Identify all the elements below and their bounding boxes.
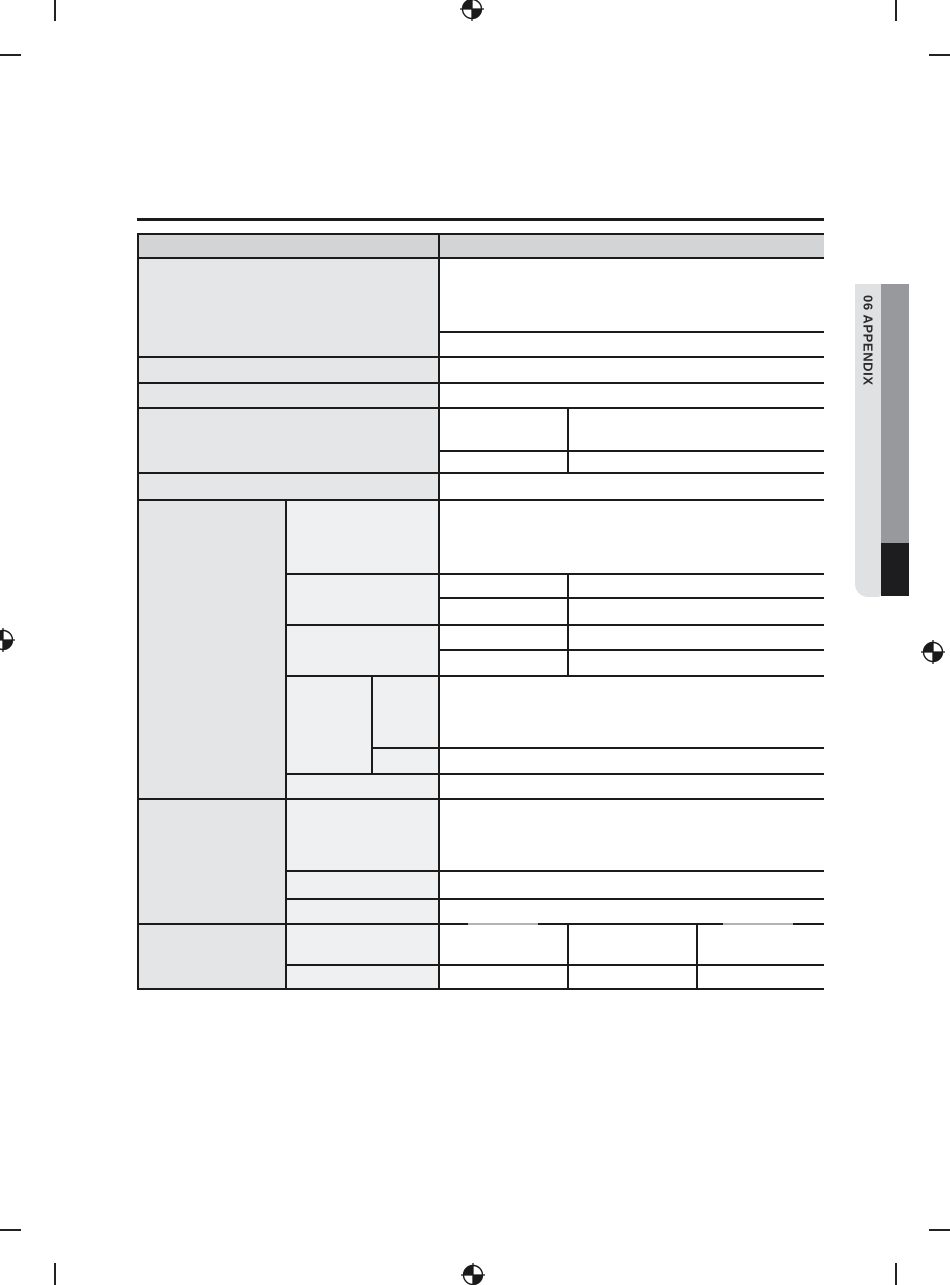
crop-mark-top-left-horizontal: [0, 54, 21, 56]
table-border-line: [137, 233, 824, 235]
table-border-line: [439, 649, 824, 651]
print-artifact-faded-line: [723, 923, 793, 925]
table-border-line: [439, 597, 824, 599]
table-border-line: [286, 675, 824, 677]
manual-page: 06 APPENDIX: [0, 0, 950, 1285]
header-cell-left: [140, 236, 435, 256]
table-border-line: [137, 257, 824, 259]
table-border-line: [137, 499, 824, 501]
table-border-line: [137, 407, 824, 409]
table-top-rule: [137, 218, 824, 221]
table-border-line: [286, 898, 824, 900]
table-value-divider: [567, 573, 569, 677]
table-border-line: [137, 472, 824, 474]
chapter-tab: 06 APPENDIX: [855, 284, 881, 597]
table-bottom-rule: [137, 988, 824, 990]
crop-mark-top-right-vertical: [895, 0, 897, 21]
table-column-divider-main: [438, 233, 440, 990]
registration-mark-top-center-icon: [460, 0, 484, 21]
table-left-border: [137, 233, 139, 990]
chapter-tab-gray-bar: [881, 284, 909, 543]
table-value-divider: [567, 923, 569, 990]
table-border-line: [286, 964, 824, 966]
crop-mark-top-right-horizontal: [929, 54, 950, 56]
crop-mark-bottom-right-horizontal: [929, 1229, 950, 1231]
table-border-line: [286, 773, 824, 775]
crop-mark-bottom-left-horizontal: [0, 1229, 21, 1231]
registration-mark-right-edge-icon: [921, 640, 945, 664]
table-border-line: [286, 624, 824, 626]
registration-mark-bottom-center-icon: [461, 1263, 485, 1285]
table-value-divider: [567, 407, 569, 474]
table-value-divider: [696, 923, 698, 990]
print-artifact-faded-line: [468, 923, 538, 925]
table-column-divider-category: [285, 499, 287, 990]
table-border-line: [439, 450, 824, 452]
table-category-column: [137, 500, 286, 989]
table-border-line: [137, 798, 824, 800]
crop-mark-top-left-vertical: [54, 0, 56, 21]
table-upper-label-column: [137, 258, 439, 500]
table-border-line: [286, 870, 824, 872]
table-border-line: [286, 573, 824, 575]
table-border-line: [137, 356, 824, 358]
crop-mark-bottom-right-vertical: [895, 1263, 897, 1285]
table-column-divider-nested: [371, 675, 373, 775]
crop-mark-bottom-left-vertical: [54, 1263, 56, 1285]
table-border-line: [439, 331, 824, 333]
registration-mark-left-edge-icon: [0, 628, 15, 652]
table-border-line: [137, 382, 824, 384]
header-cell-right: [443, 236, 821, 256]
chapter-tab-black-bar: [881, 543, 909, 596]
chapter-tab-label: 06 APPENDIX: [861, 295, 876, 386]
